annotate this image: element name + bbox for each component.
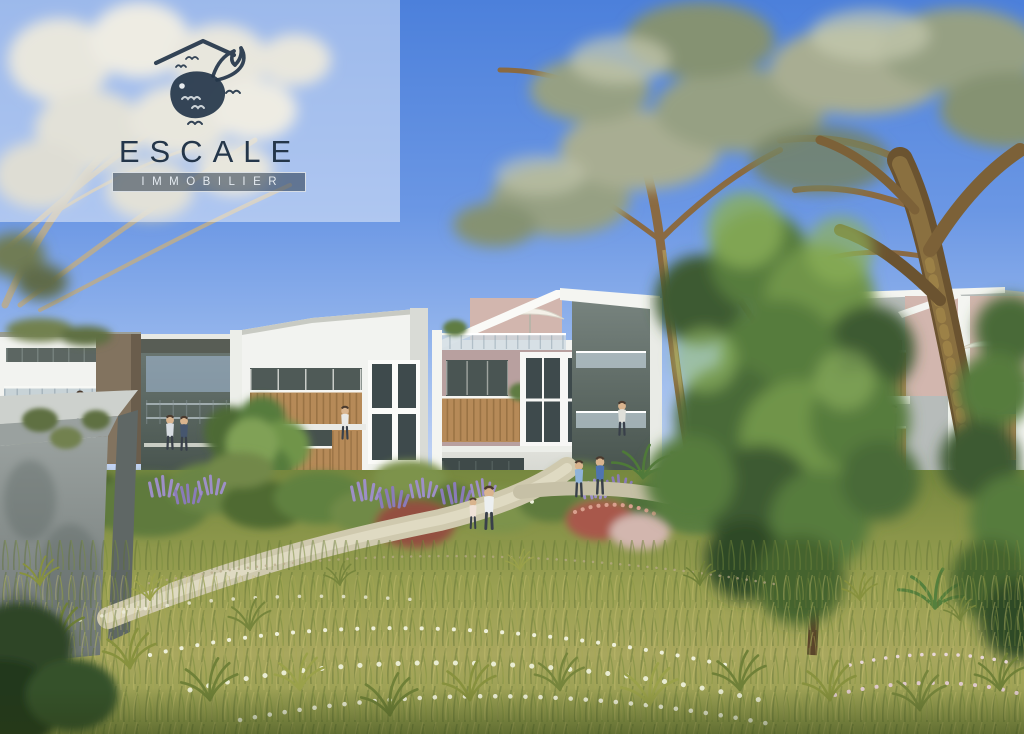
logo-subtitle: IMMOBILIER	[134, 176, 284, 188]
logo-overlay: ESCALE IMMOBILIER	[0, 0, 400, 222]
logo-subtitle-box: IMMOBILIER	[112, 172, 306, 192]
architectural-render: ESCALE IMMOBILIER	[0, 0, 1024, 734]
whale-house-logo-icon	[146, 28, 266, 130]
logo-title: ESCALE	[0, 134, 410, 170]
bottom-vignette	[0, 688, 1024, 734]
